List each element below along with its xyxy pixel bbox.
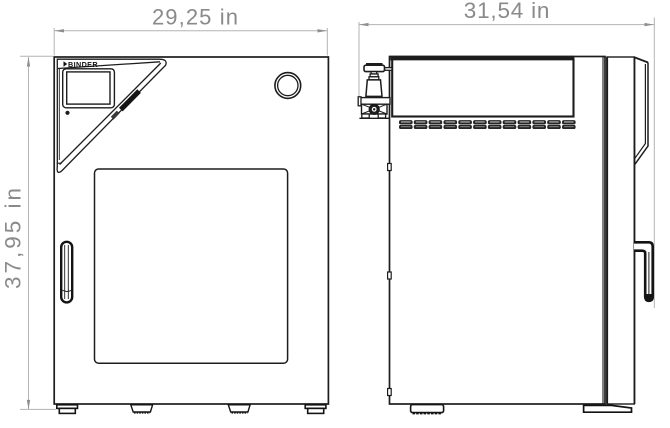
svg-text:37,95 in: 37,95 in [0,185,25,289]
svg-text:29,25 in: 29,25 in [152,5,239,30]
svg-text:31,54 in: 31,54 in [464,0,550,23]
svg-text:BINDER: BINDER [68,60,98,69]
